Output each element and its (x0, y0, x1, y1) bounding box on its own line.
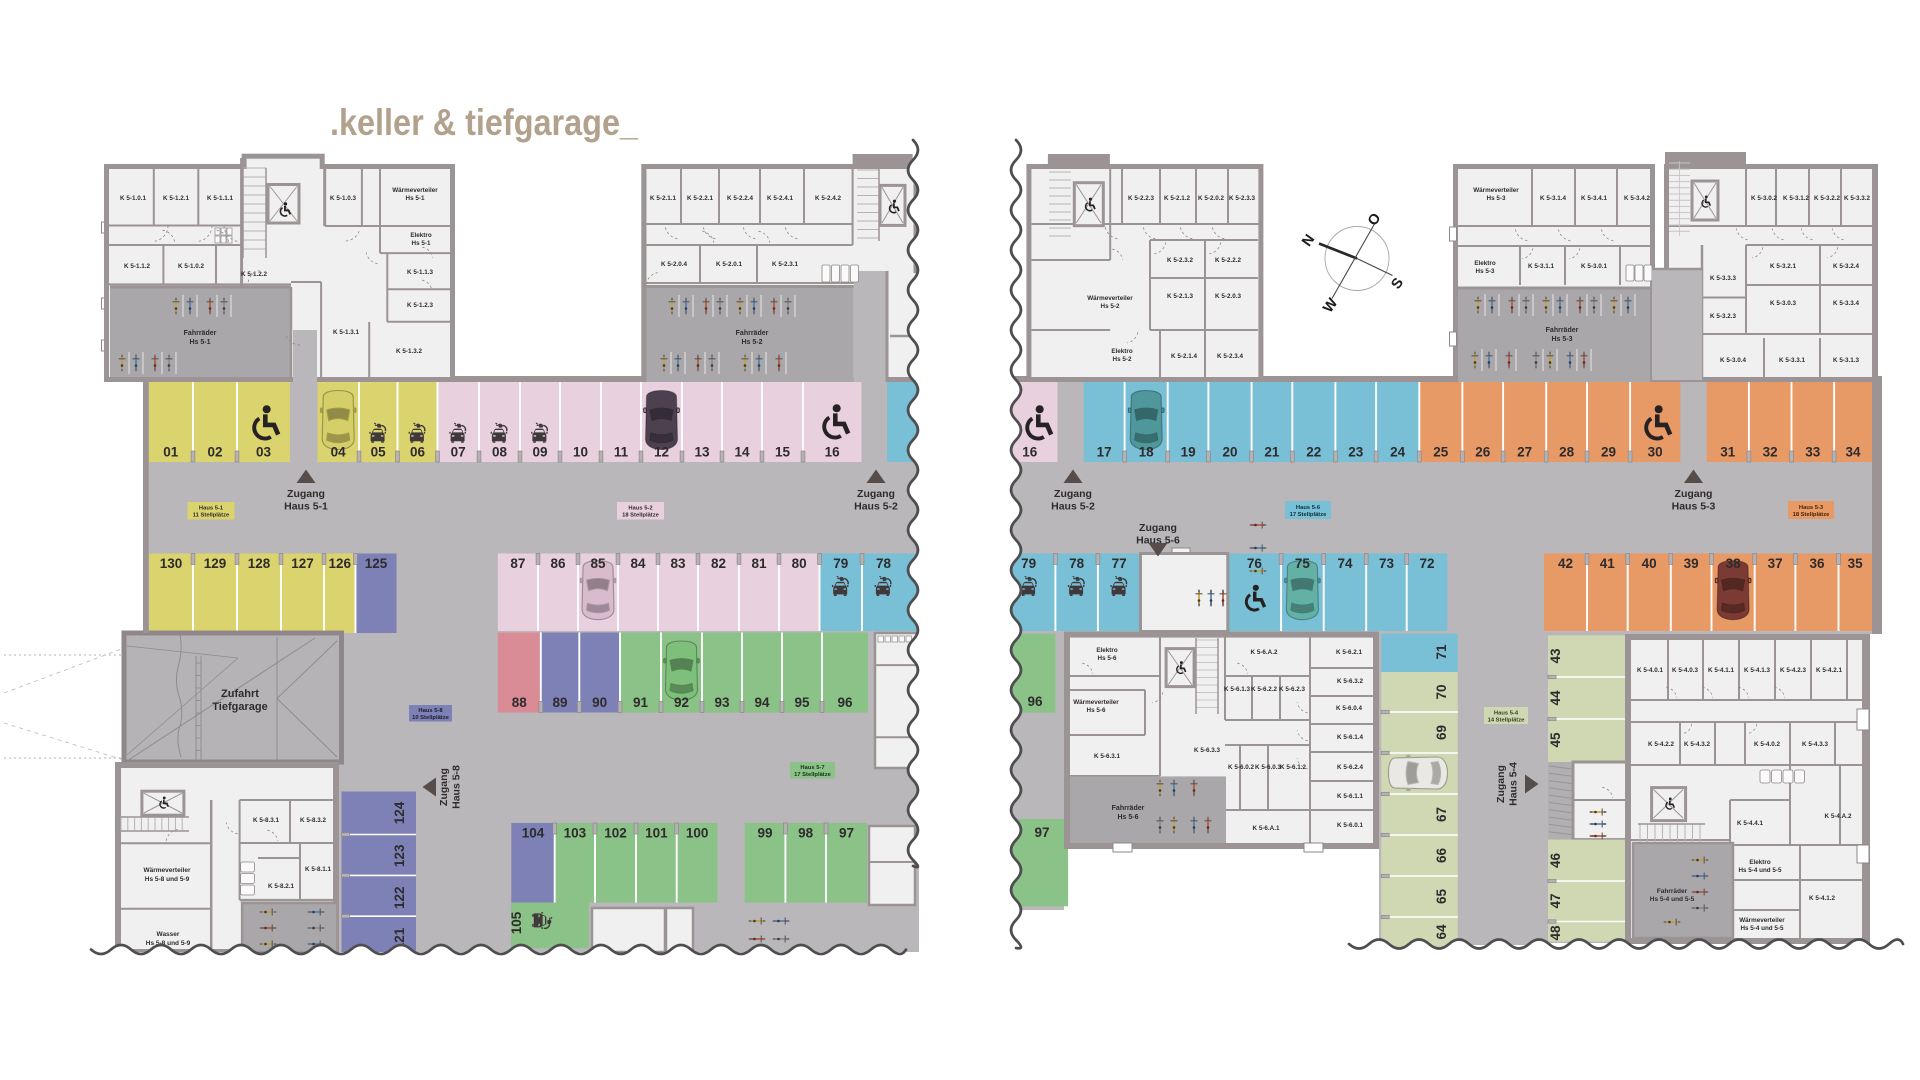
svg-text:K 5-8.1.1: K 5-8.1.1 (305, 866, 331, 873)
svg-text:79: 79 (1021, 556, 1036, 571)
svg-text:32: 32 (1763, 445, 1778, 460)
svg-text:66: 66 (1434, 848, 1449, 864)
svg-text:.keller & tiefgarage_: .keller & tiefgarage_ (330, 102, 638, 143)
svg-text:K 5-3.1.2: K 5-3.1.2 (1783, 195, 1809, 202)
svg-text:128: 128 (248, 556, 271, 571)
svg-text:85: 85 (590, 556, 606, 571)
svg-text:130: 130 (160, 556, 183, 571)
svg-text:K 5-6.3.3: K 5-6.3.3 (1194, 747, 1220, 754)
svg-text:102: 102 (604, 826, 627, 841)
svg-text:36: 36 (1809, 556, 1825, 571)
svg-text:Haus 5-2: Haus 5-2 (628, 506, 652, 512)
svg-text:93: 93 (714, 695, 730, 710)
svg-text:K 5-1.1.1: K 5-1.1.1 (207, 195, 233, 202)
svg-text:95: 95 (794, 695, 810, 710)
svg-text:K 5-2.2.4: K 5-2.2.4 (727, 195, 753, 202)
svg-text:86: 86 (550, 556, 566, 571)
svg-text:22: 22 (1306, 445, 1321, 460)
svg-text:76: 76 (1247, 556, 1263, 571)
svg-text:K 5-4.2.2: K 5-4.2.2 (1648, 741, 1674, 748)
svg-text:K 5-6.2.1: K 5-6.2.1 (1336, 649, 1362, 656)
svg-text:75: 75 (1295, 556, 1311, 571)
svg-text:34: 34 (1845, 445, 1861, 460)
svg-text:K 5-2.3.2: K 5-2.3.2 (1167, 257, 1193, 264)
svg-text:Wärmeverteiler: Wärmeverteiler (1473, 187, 1519, 194)
svg-text:K 5-2.3.3: K 5-2.3.3 (1229, 195, 1255, 202)
svg-text:Haus 5-2: Haus 5-2 (1051, 501, 1095, 513)
svg-text:Haus 5-6: Haus 5-6 (1296, 505, 1321, 511)
svg-text:96: 96 (837, 695, 853, 710)
svg-text:78: 78 (1069, 556, 1085, 571)
svg-text:18 Stellplätze: 18 Stellplätze (622, 513, 660, 519)
svg-text:02: 02 (207, 445, 222, 460)
svg-text:42: 42 (1558, 556, 1573, 571)
svg-text:31: 31 (1720, 445, 1736, 460)
svg-text:125: 125 (365, 556, 388, 571)
svg-text:K 5-6.0.1: K 5-6.0.1 (1337, 822, 1363, 829)
svg-text:94: 94 (754, 695, 770, 710)
svg-text:97: 97 (1034, 825, 1049, 840)
svg-text:87: 87 (510, 556, 525, 571)
svg-text:127: 127 (291, 556, 314, 571)
svg-text:41: 41 (1600, 556, 1616, 571)
svg-text:11: 11 (614, 445, 629, 460)
svg-text:K 5-4.2.3: K 5-4.2.3 (1780, 667, 1806, 674)
svg-text:K 5-2.4.2: K 5-2.4.2 (815, 195, 841, 202)
svg-text:12: 12 (654, 445, 669, 460)
svg-text:K 5-6.1.4: K 5-6.1.4 (1337, 734, 1363, 741)
svg-text:K 5-1.2.2: K 5-1.2.2 (241, 271, 267, 278)
svg-text:Haus 5-2: Haus 5-2 (854, 501, 898, 513)
svg-text:K 5-2.2.1: K 5-2.2.1 (687, 195, 713, 202)
svg-text:K 5-3.4.2: K 5-3.4.2 (1624, 195, 1650, 202)
svg-text:Zugang: Zugang (1054, 488, 1092, 500)
svg-text:26: 26 (1475, 445, 1491, 460)
svg-text:K 5-1.0.1: K 5-1.0.1 (120, 195, 146, 202)
svg-text:Wärmeverteiler: Wärmeverteiler (144, 867, 191, 874)
svg-text:Haus 5-8: Haus 5-8 (451, 765, 463, 809)
svg-text:92: 92 (674, 695, 689, 710)
svg-text:14 Stellplätze: 14 Stellplätze (1488, 718, 1526, 724)
svg-text:Hs 5-2: Hs 5-2 (1113, 356, 1132, 363)
svg-text:K 5-4.2.1: K 5-4.2.1 (1816, 667, 1842, 674)
svg-text:23: 23 (1348, 445, 1364, 460)
svg-text:Fahrräder: Fahrräder (736, 330, 769, 337)
svg-text:Haus 5-4: Haus 5-4 (1494, 711, 1519, 717)
svg-text:Fahrräder: Fahrräder (1112, 805, 1145, 812)
svg-text:Zugang: Zugang (857, 488, 895, 500)
svg-text:Zufahrt: Zufahrt (221, 688, 259, 700)
svg-text:04: 04 (331, 445, 347, 460)
svg-text:K 5-3.0.3: K 5-3.0.3 (1770, 300, 1796, 307)
svg-text:83: 83 (670, 556, 686, 571)
svg-text:46: 46 (1548, 853, 1563, 869)
svg-text:Hs 5-8 und 5-9: Hs 5-8 und 5-9 (145, 876, 190, 883)
svg-text:07: 07 (451, 445, 466, 460)
svg-text:17: 17 (1097, 445, 1112, 460)
svg-text:18 Stellplätze: 18 Stellplätze (1793, 512, 1831, 518)
svg-text:Haus 5-4: Haus 5-4 (1508, 762, 1520, 806)
svg-text:K 5-3.3.3: K 5-3.3.3 (1710, 275, 1736, 282)
svg-text:33: 33 (1805, 445, 1821, 460)
svg-text:K 5-2.2.3: K 5-2.2.3 (1128, 195, 1154, 202)
svg-text:Hs 5-2: Hs 5-2 (741, 339, 762, 346)
svg-text:K 5-1.0.2: K 5-1.0.2 (178, 263, 204, 270)
svg-text:K 5-3.3.4: K 5-3.3.4 (1833, 300, 1859, 307)
svg-text:Hs 5-4 und 5-5: Hs 5-4 und 5-5 (1650, 896, 1695, 903)
svg-text:Elektro: Elektro (410, 232, 432, 239)
svg-text:48: 48 (1548, 925, 1563, 941)
svg-text:K 5-1.0.3: K 5-1.0.3 (330, 195, 356, 202)
svg-text:20: 20 (1222, 445, 1237, 460)
svg-text:03: 03 (256, 445, 272, 460)
svg-text:K 5-3.3.1: K 5-3.3.1 (1779, 357, 1805, 364)
svg-text:K 5-4.4.1: K 5-4.4.1 (1737, 820, 1763, 827)
svg-text:97: 97 (839, 826, 854, 841)
svg-text:72: 72 (1419, 556, 1434, 571)
svg-text:K 5-8.2.1: K 5-8.2.1 (268, 883, 294, 890)
svg-text:K 5-3.2.4: K 5-3.2.4 (1833, 263, 1859, 270)
svg-text:17 Stellplätze: 17 Stellplätze (1290, 512, 1328, 518)
svg-text:80: 80 (792, 556, 807, 571)
svg-text:82: 82 (711, 556, 726, 571)
svg-text:K 5-3.1.3: K 5-3.1.3 (1833, 357, 1859, 364)
svg-text:47: 47 (1548, 893, 1563, 908)
svg-text:Hs 5-6: Hs 5-6 (1117, 814, 1138, 821)
svg-text:K 5-6.1.3: K 5-6.1.3 (1224, 686, 1250, 693)
svg-text:64: 64 (1434, 924, 1449, 940)
svg-text:129: 129 (204, 556, 227, 571)
svg-text:25: 25 (1433, 445, 1449, 460)
svg-text:K 5-1.2.3: K 5-1.2.3 (407, 302, 433, 309)
svg-text:16: 16 (825, 445, 841, 460)
svg-text:122: 122 (392, 886, 407, 909)
svg-text:K 5-3.2.2: K 5-3.2.2 (1814, 195, 1840, 202)
svg-text:124: 124 (392, 801, 407, 824)
svg-text:89: 89 (552, 695, 567, 710)
svg-text:Haus 5-7: Haus 5-7 (800, 765, 824, 771)
svg-text:Wärmeverteiler: Wärmeverteiler (1739, 917, 1785, 924)
svg-text:44: 44 (1548, 690, 1563, 706)
svg-text:45: 45 (1548, 732, 1563, 748)
svg-text:98: 98 (798, 826, 814, 841)
svg-text:Hs 5-4 und 5-5: Hs 5-4 und 5-5 (1740, 925, 1784, 932)
svg-text:K 5-6.0.2: K 5-6.0.2 (1228, 764, 1254, 771)
svg-text:19: 19 (1181, 445, 1196, 460)
svg-text:K 5-4.1.2: K 5-4.1.2 (1809, 895, 1835, 902)
svg-text:K 5-1.3.2: K 5-1.3.2 (396, 348, 422, 355)
svg-text:K 5-3.0.1: K 5-3.0.1 (1581, 263, 1607, 270)
svg-text:99: 99 (757, 826, 772, 841)
svg-text:K 5-3.0.2: K 5-3.0.2 (1751, 195, 1777, 202)
svg-text:K 5-6.3.1: K 5-6.3.1 (1094, 753, 1120, 760)
svg-text:67: 67 (1434, 807, 1449, 822)
svg-text:Zugang: Zugang (287, 488, 325, 500)
svg-text:Tiefgarage: Tiefgarage (212, 701, 267, 713)
svg-text:Haus 5-3: Haus 5-3 (1672, 501, 1716, 513)
svg-text:14: 14 (734, 445, 750, 460)
svg-text:K 5-6.A.2: K 5-6.A.2 (1251, 649, 1278, 656)
svg-text:08: 08 (492, 445, 508, 460)
svg-text:Haus 5-3: Haus 5-3 (1799, 505, 1824, 511)
svg-text:Hs 5-1: Hs 5-1 (406, 195, 425, 202)
svg-text:35: 35 (1848, 556, 1864, 571)
svg-text:30: 30 (1648, 445, 1663, 460)
svg-text:27: 27 (1517, 445, 1532, 460)
svg-text:43: 43 (1548, 648, 1563, 664)
svg-text:Fahrräder: Fahrräder (1546, 327, 1579, 334)
svg-text:126: 126 (329, 556, 352, 571)
svg-text:K 5-3.2.3: K 5-3.2.3 (1710, 313, 1736, 320)
svg-text:123: 123 (392, 844, 407, 867)
svg-text:69: 69 (1434, 725, 1449, 740)
svg-text:81: 81 (751, 556, 767, 571)
svg-text:K 5-2.2.2: K 5-2.2.2 (1215, 257, 1241, 264)
svg-text:Haus 5-8: Haus 5-8 (418, 708, 443, 714)
svg-text:Zugang: Zugang (1139, 522, 1177, 534)
svg-text:K 5-4.0.1: K 5-4.0.1 (1637, 667, 1663, 674)
svg-text:06: 06 (410, 445, 426, 460)
svg-text:Zugang: Zugang (1495, 765, 1507, 803)
svg-text:K 5-6.1.1: K 5-6.1.1 (1337, 793, 1363, 800)
svg-text:37: 37 (1768, 556, 1783, 571)
svg-text:29: 29 (1601, 445, 1616, 460)
svg-text:17 Stellplätze: 17 Stellplätze (794, 772, 832, 778)
svg-text:Elektro: Elektro (1474, 260, 1496, 267)
svg-text:K 5-2.3.1: K 5-2.3.1 (772, 261, 798, 268)
svg-text:Hs 5-3: Hs 5-3 (1476, 268, 1495, 275)
svg-text:Hs 5-6: Hs 5-6 (1098, 655, 1117, 662)
svg-text:K 5-6.3.2: K 5-6.3.2 (1337, 678, 1363, 685)
svg-text:K 5-4.0.3: K 5-4.0.3 (1672, 667, 1698, 674)
svg-text:K 5-2.1.2: K 5-2.1.2 (1164, 195, 1190, 202)
svg-text:K 5-1.2.1: K 5-1.2.1 (163, 195, 189, 202)
svg-text:K 5-1.1.2: K 5-1.1.2 (124, 263, 150, 270)
svg-text:K 5-1.3.1: K 5-1.3.1 (333, 329, 359, 336)
svg-text:K 5-6.2.2: K 5-6.2.2 (1251, 686, 1277, 693)
svg-text:K 5-8.3.1: K 5-8.3.1 (253, 817, 279, 824)
svg-text:K 5-4.3.2: K 5-4.3.2 (1684, 741, 1710, 748)
svg-text:K 5-3.0.4: K 5-3.0.4 (1720, 357, 1746, 364)
svg-text:K 5-2.1.3: K 5-2.1.3 (1167, 293, 1193, 300)
svg-text:21: 21 (1264, 445, 1280, 460)
svg-text:K 5-2.0.2: K 5-2.0.2 (1198, 195, 1224, 202)
svg-text:K 5-6.0.3: K 5-6.0.3 (1255, 764, 1281, 771)
svg-text:104: 104 (522, 826, 545, 841)
svg-text:K 5-2.1.1: K 5-2.1.1 (650, 195, 676, 202)
svg-text:16: 16 (1022, 445, 1038, 460)
svg-text:K 5-6.A.1: K 5-6.A.1 (1253, 825, 1280, 832)
svg-text:100: 100 (686, 826, 709, 841)
svg-text:K 5-3.4.1: K 5-3.4.1 (1581, 195, 1607, 202)
svg-text:73: 73 (1379, 556, 1395, 571)
svg-text:K 5-6.2.3: K 5-6.2.3 (1279, 686, 1305, 693)
svg-text:K 5-1.1.3: K 5-1.1.3 (407, 269, 433, 276)
svg-text:65: 65 (1434, 889, 1449, 905)
svg-text:K 5-2.0.3: K 5-2.0.3 (1215, 293, 1241, 300)
svg-text:70: 70 (1434, 684, 1449, 699)
svg-text:79: 79 (833, 556, 848, 571)
svg-text:40: 40 (1642, 556, 1657, 571)
svg-text:05: 05 (371, 445, 387, 460)
svg-text:Elektro: Elektro (1749, 859, 1771, 866)
svg-text:K 5-4.1.1: K 5-4.1.1 (1708, 667, 1734, 674)
svg-text:K 5-2.0.1: K 5-2.0.1 (716, 261, 742, 268)
svg-text:10: 10 (573, 445, 588, 460)
svg-text:K 5-3.1.4: K 5-3.1.4 (1540, 195, 1566, 202)
svg-text:Wasser: Wasser (157, 931, 180, 938)
svg-text:90: 90 (592, 695, 607, 710)
svg-text:K 5-3.1.1: K 5-3.1.1 (1528, 263, 1554, 270)
svg-text:K 5-6.2.4: K 5-6.2.4 (1337, 764, 1363, 771)
svg-text:11 Stellplätze: 11 Stellplätze (193, 513, 230, 519)
svg-text:Fahrräder: Fahrräder (184, 330, 217, 337)
svg-text:Elektro: Elektro (1096, 647, 1118, 654)
svg-text:74: 74 (1337, 556, 1353, 571)
svg-text:Hs 5-1: Hs 5-1 (412, 240, 431, 247)
svg-text:84: 84 (630, 556, 646, 571)
svg-text:91: 91 (633, 695, 649, 710)
svg-text:28: 28 (1559, 445, 1575, 460)
svg-text:Hs 5-4 und 5-5: Hs 5-4 und 5-5 (1738, 867, 1782, 874)
svg-text:K 5-3.2.1: K 5-3.2.1 (1770, 263, 1796, 270)
svg-text:Hs 5-6: Hs 5-6 (1087, 707, 1106, 714)
svg-text:Wärmeverteiler: Wärmeverteiler (1073, 699, 1119, 706)
svg-text:K 5-2.3.4: K 5-2.3.4 (1217, 353, 1243, 360)
svg-text:K 5-2.1.4: K 5-2.1.4 (1171, 353, 1197, 360)
svg-text:Haus 5-1: Haus 5-1 (284, 501, 328, 513)
svg-text:38: 38 (1726, 556, 1742, 571)
svg-text:Elektro: Elektro (1111, 348, 1133, 355)
svg-text:Wärmeverteiler: Wärmeverteiler (392, 187, 438, 194)
svg-text:K 5-6.0.4: K 5-6.0.4 (1336, 705, 1362, 712)
svg-text:10 Stellplätze: 10 Stellplätze (412, 715, 450, 721)
svg-text:15: 15 (775, 445, 791, 460)
svg-text:K 5-4.3.3: K 5-4.3.3 (1802, 741, 1828, 748)
svg-text:Hs 5-3: Hs 5-3 (1551, 336, 1572, 343)
svg-text:Hs 5-1: Hs 5-1 (189, 339, 210, 346)
svg-text:78: 78 (876, 556, 892, 571)
svg-text:K 5-3.3.2: K 5-3.3.2 (1844, 195, 1870, 202)
svg-text:K 5-2.4.1: K 5-2.4.1 (767, 195, 793, 202)
svg-text:96: 96 (1027, 694, 1043, 709)
svg-text:Zugang: Zugang (438, 768, 450, 806)
svg-text:K 5-4.0.2: K 5-4.0.2 (1754, 741, 1780, 748)
svg-text:Haus 5-1: Haus 5-1 (199, 506, 224, 512)
svg-text:88: 88 (512, 695, 528, 710)
svg-text:09: 09 (532, 445, 547, 460)
svg-text:01: 01 (163, 445, 179, 460)
svg-text:K 5-4.1.3: K 5-4.1.3 (1744, 667, 1770, 674)
svg-text:K 5-4.A.2: K 5-4.A.2 (1825, 813, 1852, 820)
svg-text:K 5-8.3.2: K 5-8.3.2 (300, 817, 326, 824)
svg-text:Zugang: Zugang (1675, 488, 1713, 500)
svg-text:103: 103 (564, 826, 587, 841)
svg-text:Wärmeverteiler: Wärmeverteiler (1087, 295, 1133, 302)
svg-text:105: 105 (509, 911, 524, 934)
svg-text:18: 18 (1139, 445, 1155, 460)
svg-text:K 5-6.1.2: K 5-6.1.2 (1280, 764, 1306, 771)
svg-text:Hs 5-3: Hs 5-3 (1487, 195, 1506, 202)
svg-text:71: 71 (1434, 644, 1449, 660)
svg-text:13: 13 (694, 445, 710, 460)
svg-text:39: 39 (1684, 556, 1699, 571)
svg-text:101: 101 (645, 826, 668, 841)
svg-text:24: 24 (1390, 445, 1406, 460)
svg-text:77: 77 (1112, 556, 1127, 571)
svg-text:K 5-2.0.4: K 5-2.0.4 (661, 261, 687, 268)
svg-text:Hs 5-2: Hs 5-2 (1101, 303, 1120, 310)
svg-text:Fahrräder: Fahrräder (1657, 888, 1688, 895)
